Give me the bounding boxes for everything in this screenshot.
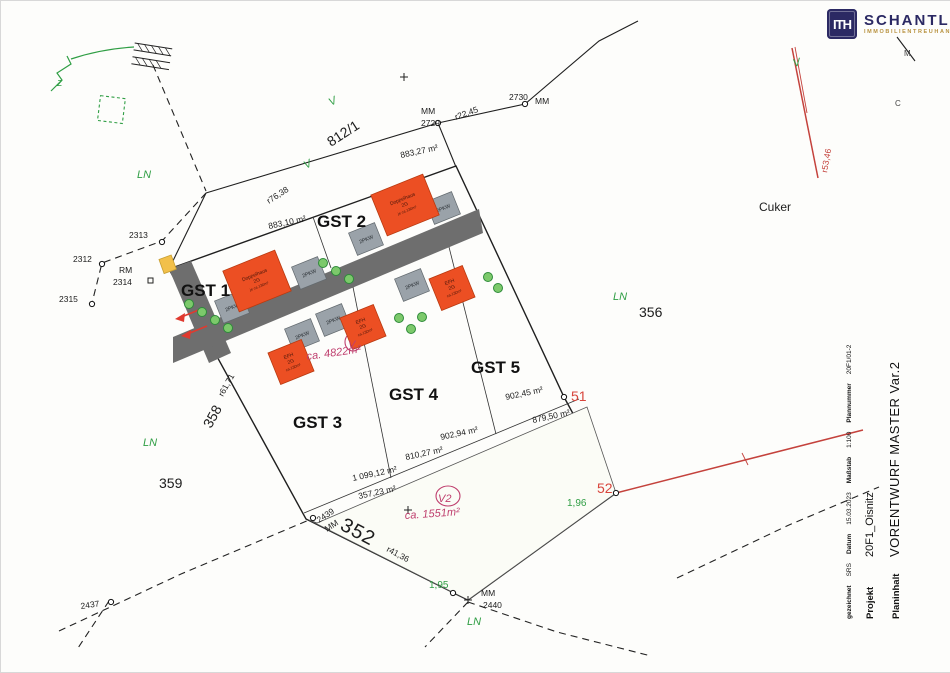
label-corner-c: C — [895, 99, 901, 108]
projekt-value: 20F1_Oisnitz — [864, 492, 876, 557]
tree-icon — [494, 284, 503, 293]
label-gst3: GST 3 — [293, 413, 342, 432]
label-rm: RM — [119, 265, 132, 275]
label-pt2312: 2312 — [73, 254, 92, 264]
site-plan-page: 2PKW2PKW2PKW2PKW2PKW2PKW2PKW Doppelhaus2… — [0, 0, 950, 673]
label-p359: 359 — [159, 475, 183, 491]
label-r7638: r76,38 — [265, 184, 291, 206]
title-block: gezeichnet SRS Datum 15.03.2023 Maßstab … — [846, 377, 902, 619]
house-gst2: Doppelhaus2Gje ca.130m² — [371, 174, 439, 236]
red-boundary-south — [616, 430, 863, 493]
tree-icon — [185, 300, 194, 309]
title-block-planinhalt: Planinhalt VORENTWURF MASTER Var.2 — [887, 377, 902, 619]
green-curve — [71, 47, 134, 59]
tree-icon — [418, 313, 427, 322]
label-pt52: 52 — [597, 480, 613, 496]
label-mm2440a: MM — [481, 588, 495, 598]
embankment-symbol — [131, 43, 172, 70]
label-area-902-94: 902,94 m² — [439, 424, 479, 442]
meta-datum-label: Datum — [846, 534, 853, 554]
carport-gst5: 2PKW — [395, 269, 430, 302]
logo-text: SCHANTL IMMOBILIENTREUHAND — [864, 13, 950, 36]
house-gst4: EFH2Gca.130m² — [340, 304, 386, 349]
label-pt2315: 2315 — [59, 294, 78, 304]
tree-icon — [319, 259, 328, 268]
planinhalt-value: VORENTWURF MASTER Var.2 — [887, 362, 902, 557]
label-pt2313: 2313 — [129, 230, 148, 240]
house-gst5: EFH2Gca.130m² — [429, 265, 475, 310]
label-pt2314: 2314 — [113, 277, 132, 287]
meta-massstab-label: Maßstab — [846, 457, 853, 483]
label-ln2: LN — [143, 437, 157, 449]
label-pt2730: 2730 — [509, 92, 528, 102]
tree-icon — [332, 267, 341, 276]
dashed-line-sw — [59, 520, 309, 631]
label-cuker: Cuker — [759, 200, 791, 214]
label-mm2730: MM — [535, 96, 549, 106]
title-block-meta: gezeichnet SRS Datum 15.03.2023 Maßstab … — [846, 377, 853, 619]
label-zg: z — [56, 77, 63, 89]
title-block-projekt: Projekt 20F1_Oisnitz — [864, 377, 876, 619]
label-pt2440: 2440 — [483, 600, 502, 610]
label-p8121: 812/1 — [324, 117, 362, 150]
label-gst4: GST 4 — [389, 385, 439, 404]
label-r5346: r53,46 — [819, 148, 833, 174]
label-area-902-45: 902,45 m² — [504, 384, 544, 402]
label-corner-m: M — [904, 49, 911, 58]
tree-icon — [395, 314, 404, 323]
dashed-line-s2 — [468, 602, 651, 656]
label-ln4: LN — [467, 616, 481, 628]
site-plan-drawing: 2PKW2PKW2PKW2PKW2PKW2PKW2PKW Doppelhaus2… — [1, 1, 950, 672]
tree-icon — [224, 324, 233, 333]
label-vg1: V — [327, 94, 341, 109]
label-r6171: r61,71 — [216, 372, 237, 398]
label-pt2729: 2729 — [421, 118, 440, 128]
meta-datum-value: 15.03.2023 — [846, 492, 853, 525]
label-area-810-27: 810,27 m² — [404, 444, 444, 462]
label-area-883-10: 883,10 m² — [267, 213, 307, 231]
logo-tagline: IMMOBILIENTREUHAND — [864, 29, 950, 35]
label-vg2: V — [302, 157, 316, 172]
label-gst5: GST 5 — [471, 358, 520, 377]
tree-icon — [198, 308, 207, 317]
tree-icon — [484, 273, 493, 282]
label-gst1: GST 1 — [181, 281, 230, 300]
label-p358: 358 — [200, 402, 225, 430]
projekt-label: Projekt — [865, 567, 876, 619]
meta-gezeichnet-value: SRS — [846, 563, 853, 576]
meta-plannummer-value: 20F1/01-2 — [846, 345, 853, 375]
label-d195: 1,95 — [429, 580, 449, 591]
tree-icon — [211, 316, 220, 325]
label-pt2437: 2437 — [80, 598, 100, 611]
label-d196: 1,96 — [567, 498, 587, 509]
label-r2245: r22,45 — [453, 104, 479, 122]
schantl-logo: ITH SCHANTL IMMOBILIENTREUHAND — [827, 9, 950, 39]
label-ln1: LN — [137, 169, 151, 181]
label-area-883-27: 883,27 m² — [399, 142, 439, 160]
logo-name: SCHANTL — [864, 13, 950, 30]
dashed-line-s1 — [425, 602, 468, 647]
logo-monogram-icon: ITH — [827, 9, 857, 39]
label-nV2: V2 — [438, 493, 451, 505]
label-area-1099-12: 1 099,12 m² — [351, 464, 398, 483]
tree-icon — [345, 275, 354, 284]
meta-plannummer-label: Plannummer — [846, 383, 853, 422]
label-mm2729a: MM — [421, 106, 435, 116]
point-2729-connector — [438, 123, 456, 167]
tree-icon — [407, 325, 416, 334]
green-dashed-square — [98, 96, 126, 124]
dashed-line-nw — [153, 65, 206, 191]
label-vg3: V — [792, 56, 804, 70]
label-ln3: LN — [613, 291, 627, 303]
meta-gezeichnet-label: gezeichnet — [846, 585, 853, 619]
label-gst2: GST 2 — [317, 212, 366, 231]
meta-massstab-value: 1:100 — [846, 432, 853, 448]
label-p356: 356 — [639, 304, 663, 320]
label-pt51: 51 — [571, 388, 587, 404]
planinhalt-label: Planinhalt — [891, 567, 902, 619]
